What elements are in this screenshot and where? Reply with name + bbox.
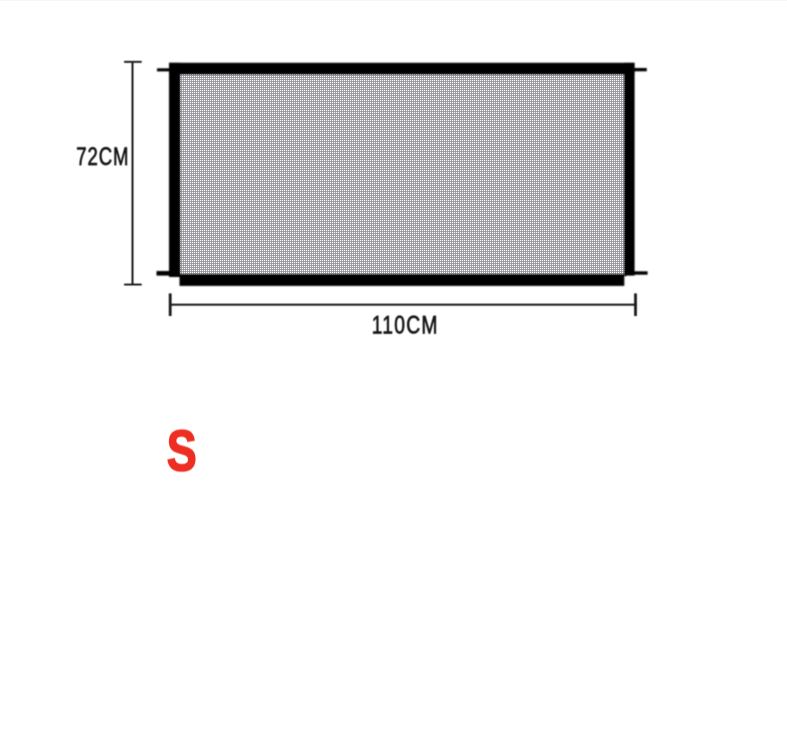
svg-text:110CM: 110CM (372, 311, 439, 339)
svg-text:S: S (167, 418, 197, 483)
svg-text:72CM: 72CM (76, 142, 129, 170)
